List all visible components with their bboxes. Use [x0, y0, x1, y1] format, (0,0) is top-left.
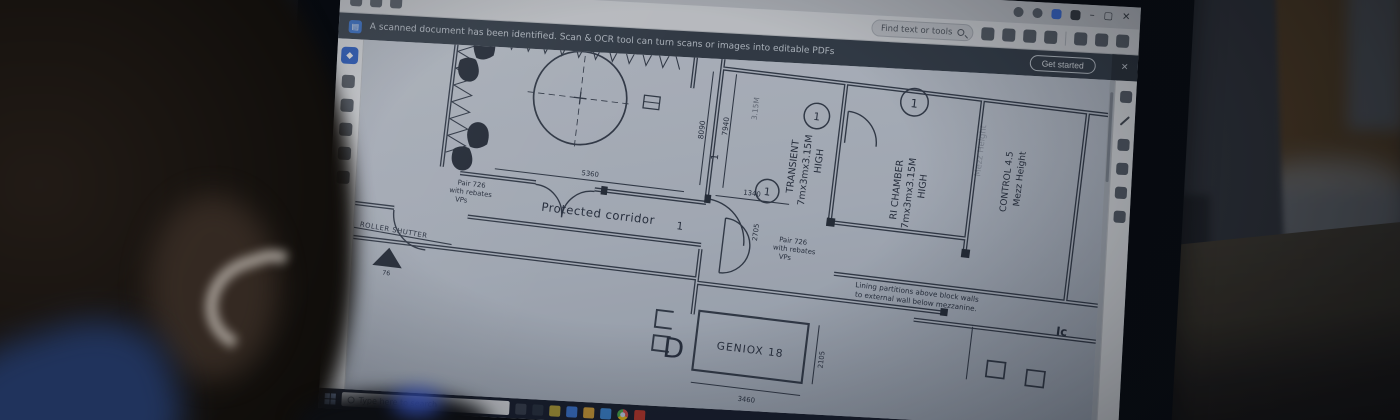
store-icon[interactable] [600, 408, 612, 420]
hand-tool-icon[interactable] [340, 99, 354, 113]
window-close-button[interactable]: ✕ [1122, 13, 1131, 23]
dim-3460: 3460 [737, 395, 755, 405]
draw-icon[interactable] [1095, 33, 1109, 47]
door-tag-5: 1 [710, 153, 722, 160]
pinned-app-icon[interactable] [532, 404, 544, 416]
find-tools-search[interactable]: Find text or tools [872, 19, 974, 41]
usb-blue-glow [392, 388, 442, 416]
dim-2105: 2105 [817, 351, 827, 369]
acrobat-icon[interactable] [634, 409, 646, 420]
zoom-in-icon[interactable] [1044, 30, 1058, 44]
file-explorer-icon[interactable] [583, 407, 595, 419]
laptop-screen: – ▢ ✕ Find text or tools [318, 0, 1141, 420]
scanned-doc-icon: ▤ [348, 19, 362, 33]
search-icon [957, 29, 964, 36]
more-tools-icon[interactable] [1113, 210, 1126, 223]
dim-2705: 2705 [751, 223, 761, 241]
photos-icon[interactable] [549, 405, 561, 417]
document-workarea: ◆ [319, 38, 1137, 420]
zoom-level-icon[interactable] [1023, 29, 1037, 43]
page-thumbnails-icon[interactable] [981, 27, 995, 41]
level-value: 76 [382, 270, 391, 278]
door-tag-1: 1 [763, 186, 771, 199]
save-icon[interactable] [370, 0, 383, 7]
control-mezz-ghost: Mezz Height [972, 124, 988, 178]
chrome-icon[interactable] [617, 408, 629, 420]
pair726-right-3: VPs [778, 253, 792, 262]
blueprint-drawing: 3.15M TRANSIENT 7mx3mx3.15M HIGH RI CHAM… [345, 40, 1110, 420]
door-tag-3: 1 [910, 96, 919, 111]
menu-icon[interactable] [350, 0, 363, 6]
dim-5360: 5360 [581, 169, 599, 179]
ahu-unit-label: GENIOX 18 [716, 340, 784, 360]
transient-room-height: HIGH [813, 148, 827, 174]
door-tag-4: 1 [676, 220, 684, 233]
insulation-hatch [446, 40, 682, 179]
dim-1340: 1340 [743, 189, 761, 199]
get-started-button[interactable]: Get started [1029, 55, 1096, 75]
photo-frame: – ▢ ✕ Find text or tools [0, 0, 1400, 420]
background-pole [1348, 0, 1400, 130]
stamp-icon[interactable] [1114, 186, 1127, 199]
vent-height-label: 3.15M [750, 97, 762, 121]
window-minimize-button[interactable]: – [1089, 11, 1095, 21]
selection-tool-icon[interactable] [341, 75, 355, 89]
app-badge-icon[interactable] [1051, 9, 1062, 20]
export-icon[interactable] [1117, 139, 1130, 152]
print-icon[interactable] [390, 0, 403, 8]
door-tag-2: 1 [813, 111, 821, 124]
account-icon[interactable] [1032, 8, 1043, 19]
notification-close-button[interactable]: ✕ [1111, 54, 1138, 81]
notification-bell-icon[interactable] [1013, 7, 1024, 18]
organize-pages-icon[interactable] [1115, 163, 1128, 176]
letter-d-mark: D [661, 332, 686, 366]
column-squares [985, 361, 1045, 388]
pen-icon[interactable] [1119, 116, 1129, 126]
pair726-left-3: VPs [455, 195, 469, 204]
toolbar-divider [1065, 31, 1067, 45]
column-mark: Ic [1055, 324, 1068, 339]
ai-assistant-tool[interactable]: ◆ [341, 46, 359, 64]
edge-icon[interactable] [566, 406, 578, 418]
edit-pdf-icon[interactable] [1119, 91, 1132, 104]
share-icon[interactable] [1070, 10, 1081, 21]
tools-grid-icon[interactable] [1116, 34, 1130, 48]
corridor-label: Protected corridor [541, 200, 656, 228]
blueprint-page[interactable]: 3.15M TRANSIENT 7mx3mx3.15M HIGH RI CHAM… [345, 40, 1110, 420]
find-tools-label: Find text or tools [881, 23, 953, 37]
window-maximize-button[interactable]: ▢ [1103, 12, 1113, 22]
laptop: – ▢ ✕ Find text or tools [275, 0, 1197, 420]
ri-chamber-height: HIGH [916, 174, 930, 200]
zoom-out-icon[interactable] [1002, 28, 1016, 42]
comment-icon[interactable] [1074, 32, 1088, 46]
level-marker-triangle [372, 246, 404, 268]
task-view-icon[interactable] [515, 403, 527, 415]
